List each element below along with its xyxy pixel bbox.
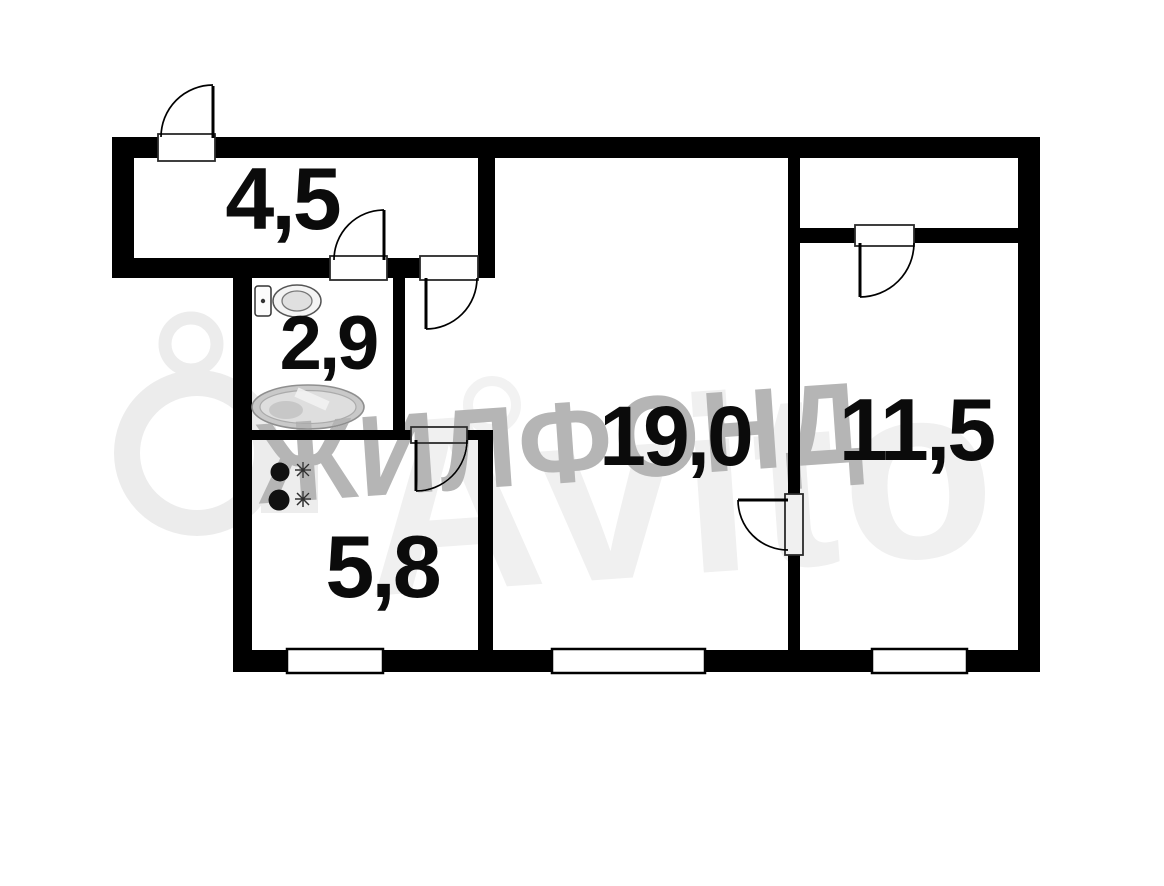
- room-label-bathroom: 2,9: [280, 306, 377, 382]
- watermark-ring-large: [127, 383, 267, 523]
- watermark-ring-dot: [468, 381, 516, 429]
- room-label-hallway: 4,5: [225, 155, 338, 243]
- room-label-living-room: 19,0: [599, 394, 751, 478]
- room-label-kitchen: 5,8: [325, 523, 438, 611]
- watermark-ring-small: [165, 318, 217, 370]
- floorplan-canvas: Avito ЖИЛФОНД 4,5 2,9 5,8 19,0 11,5: [0, 0, 1164, 886]
- room-label-bedroom: 11,5: [839, 386, 993, 474]
